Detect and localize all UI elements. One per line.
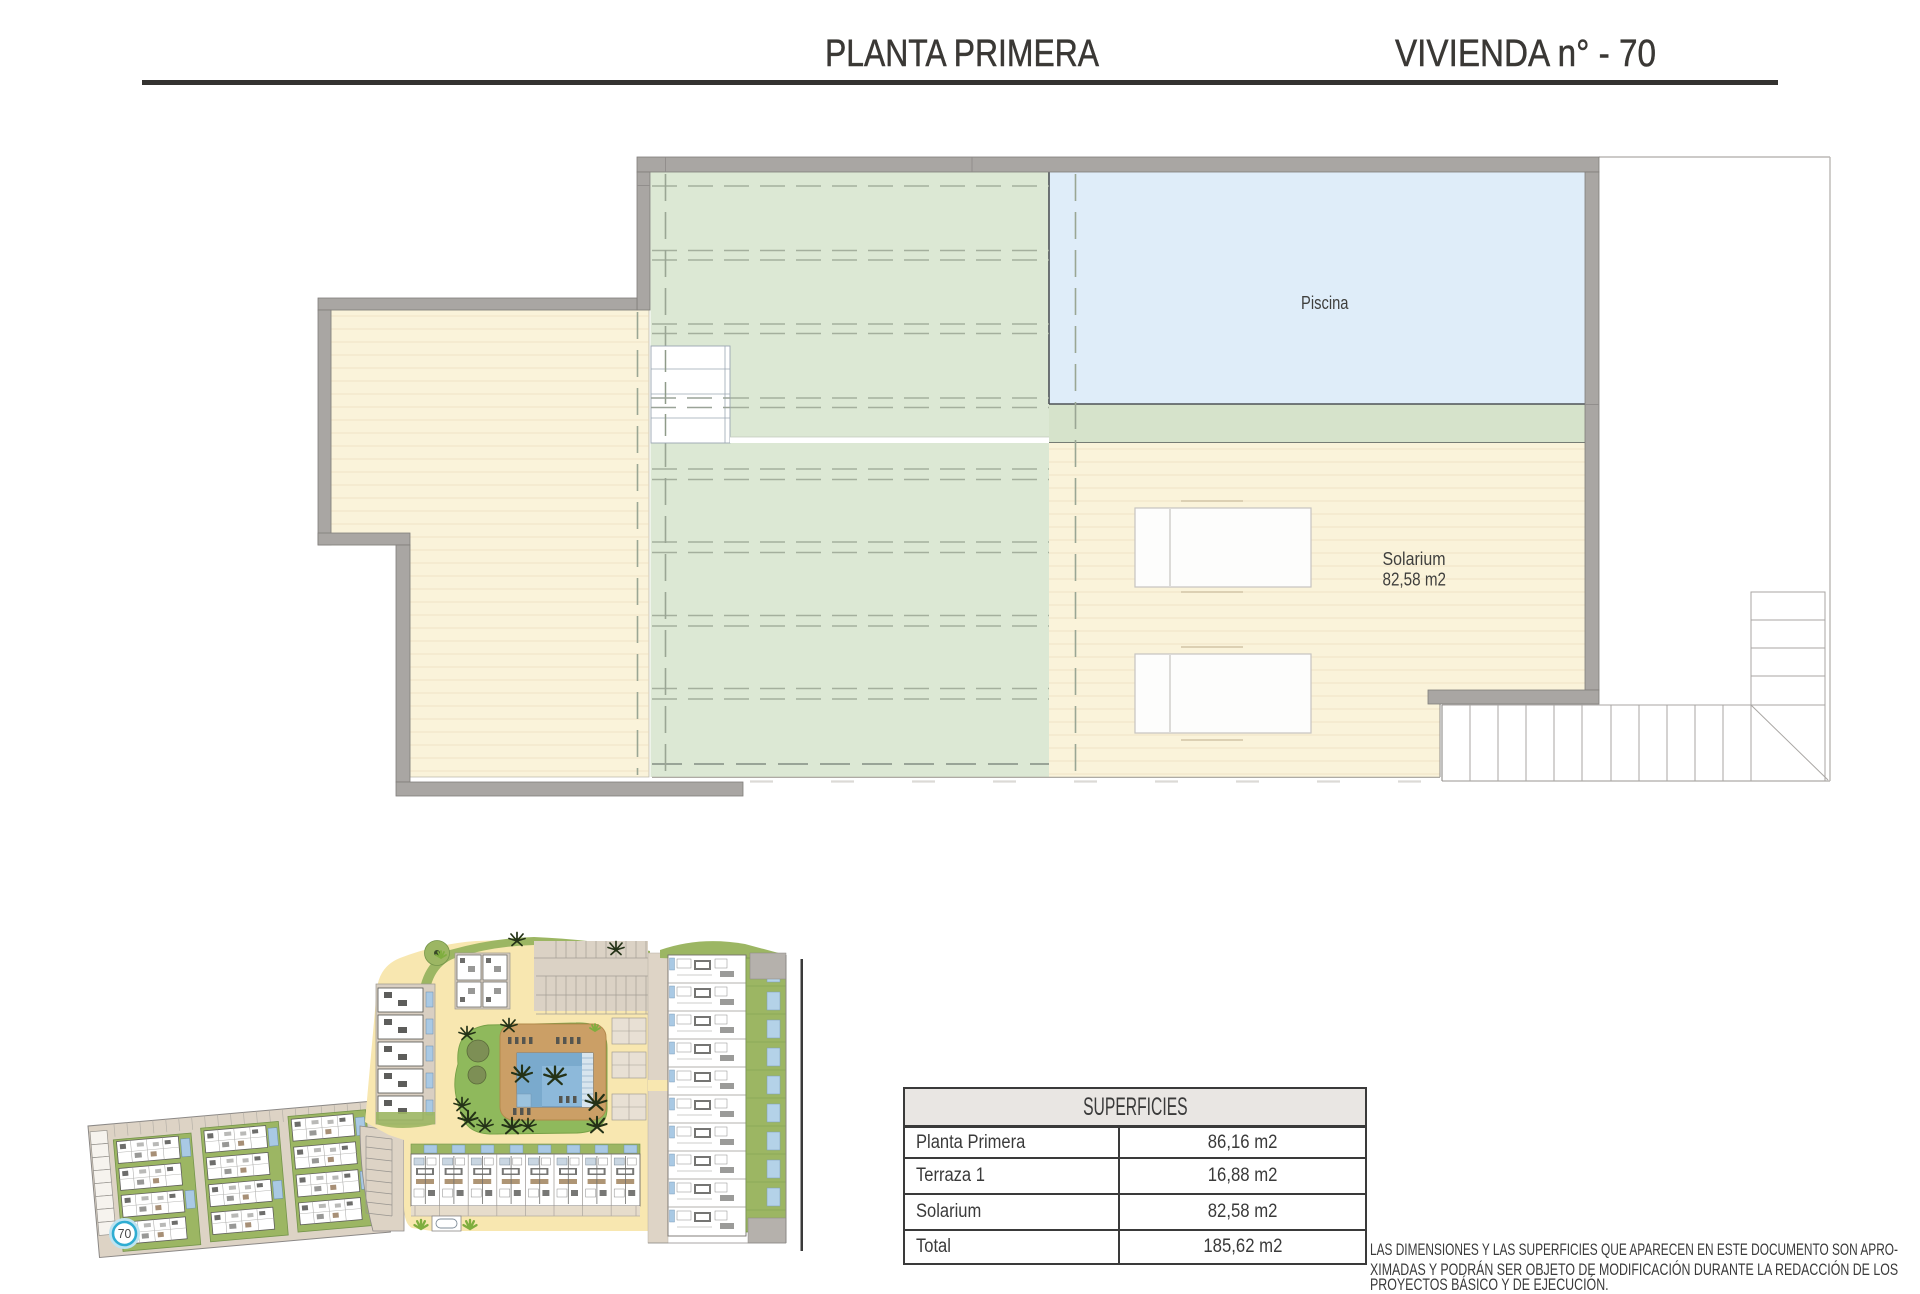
svg-text:Solarium: Solarium bbox=[1383, 549, 1446, 569]
svg-text:Piscina: Piscina bbox=[1301, 293, 1349, 313]
svg-text:82,58 m2: 82,58 m2 bbox=[1383, 569, 1447, 589]
svg-text:70: 70 bbox=[118, 1227, 132, 1241]
